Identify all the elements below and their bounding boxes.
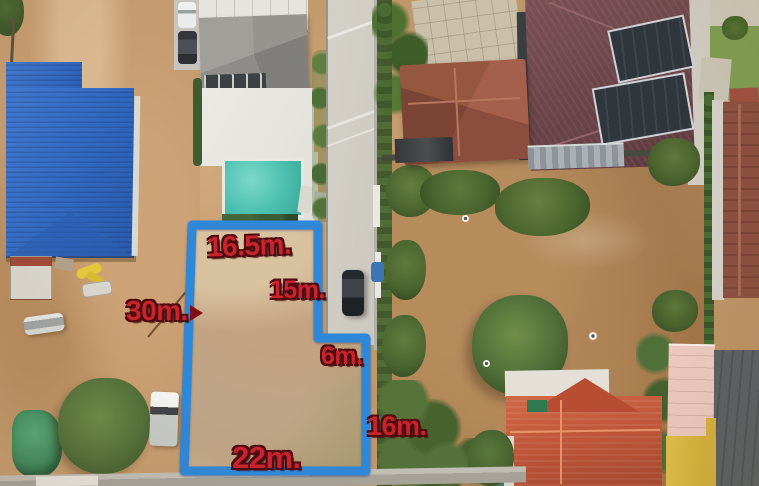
measurement-label-bottom-width: 22m.: [232, 442, 301, 473]
measurement-label-left-depth: 30m.: [126, 297, 203, 325]
measurement-label-lower-right: 16m.: [367, 413, 427, 440]
measurement-label-road-frontage: 6m.: [321, 344, 363, 369]
measurement-text: 30m.: [126, 295, 188, 326]
measurement-label-top-width: 16.5m.: [207, 231, 292, 262]
aerial-photo: 16.5m. 15m. 30m. 6m. 22m. 16m.: [0, 0, 759, 486]
direction-arrow-icon: [190, 305, 203, 321]
measurement-label-upper-right: 15m.: [270, 278, 325, 303]
